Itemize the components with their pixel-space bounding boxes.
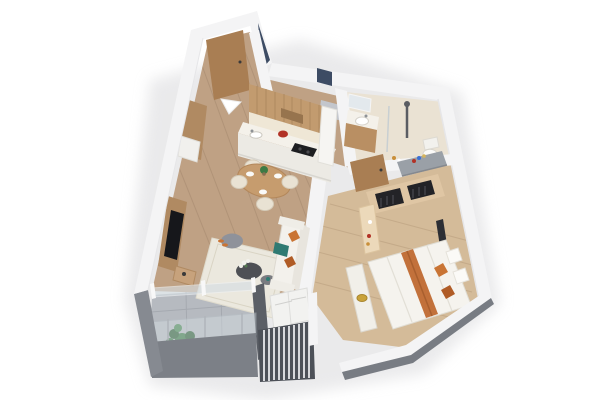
flower-vase	[239, 264, 243, 268]
bath-accessory	[398, 159, 401, 162]
ac-unit-enclosure	[252, 283, 318, 382]
shower-head	[404, 101, 410, 107]
red-kettle	[278, 131, 288, 138]
bathroom-sink	[356, 117, 369, 125]
bedroom-door-handle	[380, 169, 383, 172]
dining-chair	[282, 176, 298, 189]
shelf-decor	[366, 242, 370, 246]
ac-outdoor-unit	[288, 288, 310, 324]
floor-plan-render	[0, 0, 600, 400]
entry-door-handle	[239, 61, 242, 64]
flower-leaves	[245, 265, 248, 268]
dinner-plate	[274, 174, 282, 179]
burner	[306, 150, 309, 153]
entry-door	[206, 30, 250, 100]
dining-chair	[231, 176, 247, 189]
flower-vase	[246, 259, 250, 263]
decor-bottle	[182, 272, 186, 276]
shelf-decor	[367, 234, 371, 238]
bath-accessory	[392, 156, 396, 160]
faucet	[251, 130, 254, 133]
sink-faucet	[365, 115, 368, 118]
dinner-plate	[246, 172, 254, 177]
slipper	[222, 243, 228, 246]
dinner-plate	[259, 190, 267, 195]
enclosure-east-wall	[308, 292, 318, 346]
floor-plan-canvas	[0, 0, 600, 400]
shelf-decor	[368, 220, 372, 224]
desk-item	[412, 159, 416, 163]
centerpiece-vase	[262, 172, 266, 176]
desk-item	[417, 156, 421, 160]
side-table-decor	[266, 277, 270, 281]
louver-screen	[258, 321, 315, 382]
desk-item	[422, 154, 426, 158]
gold-tray	[357, 295, 367, 302]
slipper	[218, 239, 224, 242]
burner	[298, 147, 301, 150]
kitchen-sink	[250, 132, 262, 138]
dining-chair	[257, 198, 274, 211]
